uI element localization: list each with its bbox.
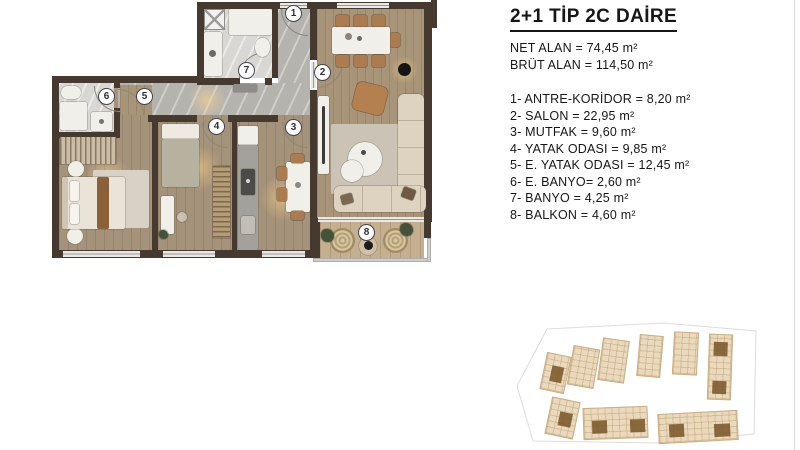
wall	[265, 78, 272, 85]
site-block	[582, 406, 648, 440]
highlighted-unit	[714, 423, 731, 437]
balcony-railing-side	[427, 238, 431, 262]
plant	[321, 229, 334, 242]
highlighted-unit	[592, 420, 607, 434]
gross-area: BRÜT ALAN = 114,50 m²	[510, 57, 653, 74]
salon-window	[337, 3, 389, 8]
room-number-8: 8	[358, 224, 375, 241]
bathtub	[229, 9, 272, 35]
pillow	[70, 204, 79, 224]
tv	[322, 106, 325, 164]
highlighted-unit	[712, 381, 726, 394]
highlighted-unit	[669, 424, 685, 438]
wall	[424, 222, 431, 238]
wicker-chair	[330, 228, 355, 253]
balcony-sliding-door	[318, 217, 424, 222]
legend-item: 4- YATAK ODASI = 9,85 m²	[510, 141, 691, 158]
dining-chair	[390, 33, 400, 47]
plant	[159, 230, 168, 239]
page-edge-line	[794, 0, 795, 450]
highlighted-unit	[549, 365, 564, 383]
room-number-3: 3	[285, 119, 302, 136]
site-block	[657, 410, 738, 444]
dining-chair	[336, 55, 349, 67]
floor-lamp	[398, 63, 411, 76]
hall-cabinet	[233, 84, 257, 92]
bed-runner	[97, 177, 109, 229]
bedroom-window	[163, 251, 215, 257]
table-decor	[361, 150, 366, 155]
plant	[400, 223, 413, 236]
toilet	[255, 38, 270, 57]
table-decor	[364, 241, 373, 250]
master-bedroom-window	[63, 251, 140, 257]
site-block	[636, 334, 664, 378]
desk-chair	[177, 212, 187, 222]
wall	[232, 122, 237, 250]
kitchen-window	[262, 251, 305, 257]
table-decor	[295, 182, 301, 188]
room-number-5: 5	[136, 88, 153, 105]
dining-chair	[372, 55, 385, 67]
wall	[52, 76, 59, 258]
sink-drain-icon	[99, 119, 104, 124]
cutting-board	[241, 216, 255, 234]
wall	[197, 2, 204, 83]
chair	[277, 188, 287, 201]
room-number-2: 2	[314, 64, 331, 81]
info-panel: 2+1 TİP 2C DAİRE NET ALAN = 74,45 m² BRÜ…	[510, 6, 795, 32]
legend-item: 3- MUTFAK = 9,60 m²	[510, 124, 691, 141]
site-block	[707, 334, 733, 401]
faucet-icon	[246, 179, 250, 183]
wall	[52, 76, 202, 83]
legend-item: 6- E. BANYO= 2,60 m²	[510, 174, 691, 191]
room-number-7: 7	[238, 62, 255, 79]
legend-item: 5- E. YATAK ODASI = 12,45 m²	[510, 157, 691, 174]
pillow	[70, 181, 79, 201]
floor-plan: 1 2 3 4 5 6 7 8	[45, 0, 437, 268]
fridge	[238, 126, 258, 145]
room-number-1: 1	[285, 5, 302, 22]
single-bed	[162, 139, 199, 187]
nightstand	[68, 161, 84, 177]
wall	[152, 115, 158, 250]
coffee-table-small	[341, 160, 363, 182]
room-number-4: 4	[208, 118, 225, 135]
ensuite-shower	[60, 102, 87, 130]
wall	[313, 218, 320, 258]
wall	[228, 115, 278, 122]
chair	[291, 154, 304, 163]
master-wardrobe	[60, 137, 116, 164]
table-decor	[345, 33, 352, 40]
table-decor	[357, 36, 362, 41]
site-block	[672, 331, 699, 375]
brochure-page: 1 2 3 4 5 6 7 8 2+1 TİP 2C DAİRE NET ALA…	[0, 0, 800, 450]
highlighted-unit	[630, 419, 645, 433]
chair	[291, 211, 304, 220]
net-area: NET ALAN = 74,45 m²	[510, 40, 653, 57]
kitchen-counter	[238, 145, 258, 250]
shower	[204, 9, 225, 30]
bedroom-wardrobe	[213, 166, 230, 238]
dining-chair	[336, 15, 349, 27]
dining-chair	[354, 15, 367, 27]
legend-item: 2- SALON = 22,95 m²	[510, 108, 691, 125]
wall	[272, 9, 278, 78]
balcony-railing	[313, 258, 431, 262]
room-number-6: 6	[98, 88, 115, 105]
highlighted-unit	[557, 411, 573, 427]
area-summary: NET ALAN = 74,45 m² BRÜT ALAN = 114,50 m…	[510, 40, 653, 74]
legend-item: 1- ANTRE-KORİDOR = 8,20 m²	[510, 91, 691, 108]
dining-chair	[354, 55, 367, 67]
legend-item: 8- BALKON = 4,60 m²	[510, 207, 691, 224]
room-legend: 1- ANTRE-KORİDOR = 8,20 m² 2- SALON = 22…	[510, 91, 691, 223]
desk	[161, 196, 174, 234]
legend-item: 7- BANYO = 4,25 m²	[510, 190, 691, 207]
ensuite-toilet	[61, 86, 81, 99]
bed-headboard	[62, 177, 68, 229]
faucet-icon	[209, 50, 216, 57]
wall	[310, 2, 317, 60]
dining-chair	[372, 15, 385, 27]
apartment-title: 2+1 TİP 2C DAİRE	[510, 6, 677, 32]
nightstand	[67, 228, 83, 244]
site-key-plan	[513, 322, 768, 448]
bed-pillow	[162, 124, 199, 139]
chair	[277, 167, 287, 180]
highlighted-unit	[713, 342, 727, 356]
